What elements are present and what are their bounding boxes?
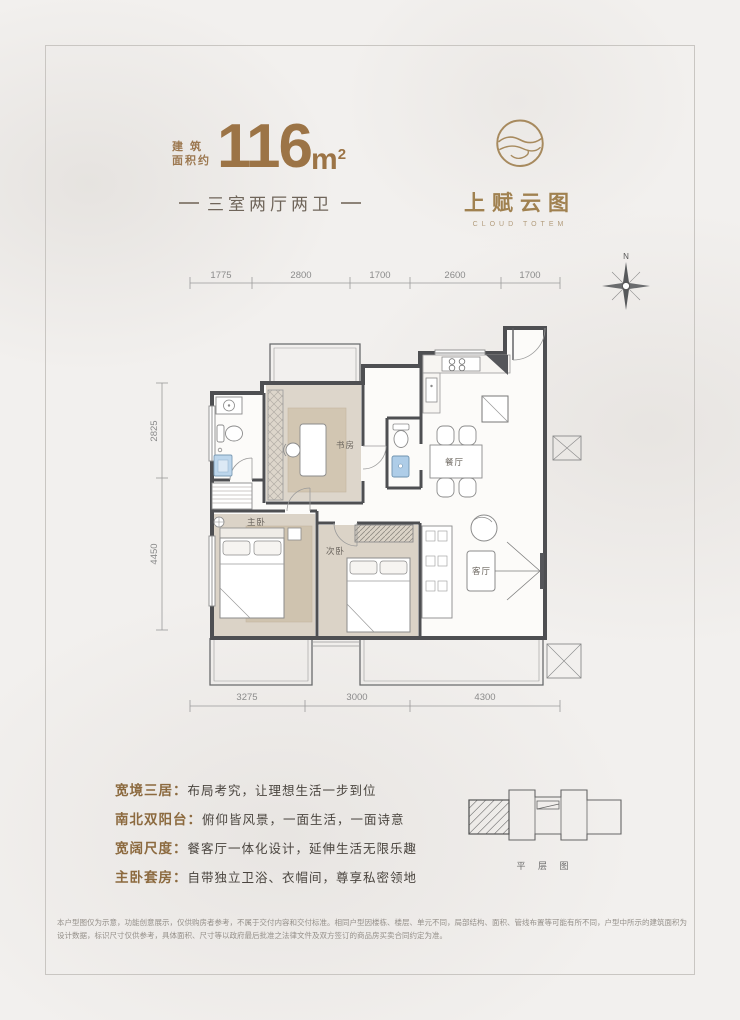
dim-top-3: 1700 bbox=[369, 270, 390, 281]
area-row: 建 筑 面积约 116 m 2 bbox=[172, 116, 372, 178]
room-label-living: 客厅 bbox=[472, 566, 491, 576]
dim-left-1: 2825 bbox=[150, 420, 160, 441]
building-key-plan: 平 层 图 bbox=[460, 778, 630, 872]
brand-name-cn: 上赋云图 bbox=[448, 187, 592, 217]
poster-page: 建 筑 面积约 116 m 2 三室两厅两卫 上赋云图 CLOUD TOTEM bbox=[0, 0, 740, 1020]
room-label-study: 书房 bbox=[336, 440, 355, 450]
dim-bottom-1: 3275 bbox=[236, 692, 257, 703]
brand-logo: 上赋云图 CLOUD TOTEM bbox=[448, 110, 592, 228]
room-label-master: 主卧 bbox=[247, 517, 266, 527]
feature-label: 宽阔尺度： bbox=[115, 837, 188, 857]
ac-platform-icon bbox=[547, 436, 581, 678]
dim-top-2: 2800 bbox=[290, 270, 311, 281]
key-plan-caption: 平 层 图 bbox=[460, 859, 630, 872]
feature-label: 主卧套房： bbox=[115, 866, 188, 886]
feature-desc: 餐客厅一体化设计，延伸生活无限乐趣 bbox=[188, 838, 418, 857]
feature-label: 南北双阳台： bbox=[115, 808, 202, 828]
feature-row-4: 主卧套房： 自带独立卫浴、衣帽间，尊享私密领地 bbox=[115, 866, 455, 886]
dim-left-2: 4450 bbox=[150, 543, 160, 564]
dim-top-4: 2600 bbox=[444, 270, 465, 281]
area-header: 建 筑 面积约 116 m 2 三室两厅两卫 bbox=[172, 116, 372, 215]
area-prefix-line1: 建 筑 bbox=[172, 140, 211, 154]
feature-desc: 布局考究，让理想生活一步到位 bbox=[188, 780, 377, 799]
feature-label: 宽境三居： bbox=[115, 779, 188, 799]
cloud-totem-emblem-icon bbox=[485, 110, 555, 180]
highlighted-unit bbox=[469, 800, 509, 834]
room-label-second: 次卧 bbox=[326, 546, 345, 556]
floor-plan: 1775 2800 1700 2600 1700 2825 4450 3275 … bbox=[150, 256, 670, 741]
dim-top-1: 1775 bbox=[210, 270, 231, 281]
subtitle-dash-left bbox=[179, 202, 199, 204]
area-exponent: 2 bbox=[338, 146, 346, 163]
dim-top-5: 1700 bbox=[519, 270, 540, 281]
area-unit: m bbox=[311, 143, 338, 177]
dim-bottom-3: 4300 bbox=[474, 692, 495, 703]
feature-list: 宽境三居： 布局考究，让理想生活一步到位 南北双阳台： 俯仰皆风景，一面生活，一… bbox=[115, 779, 455, 895]
layout-subtitle: 三室两厅两卫 bbox=[207, 190, 333, 215]
key-plan-diagram bbox=[465, 778, 625, 846]
area-prefix-line2: 面积约 bbox=[172, 154, 211, 168]
disclaimer-text: 本户型图仅为示意，功能创意展示，仅供购房者参考，不属于交付内容和交付标准。相同户… bbox=[57, 916, 687, 942]
feature-row-2: 南北双阳台： 俯仰皆风景，一面生活，一面诗意 bbox=[115, 808, 455, 828]
feature-row-1: 宽境三居： 布局考究，让理想生活一步到位 bbox=[115, 779, 455, 799]
feature-row-3: 宽阔尺度： 餐客厅一体化设计，延伸生活无限乐趣 bbox=[115, 837, 455, 857]
room-label-dining: 餐厅 bbox=[445, 457, 464, 467]
feature-desc: 自带独立卫浴、衣帽间，尊享私密领地 bbox=[188, 867, 418, 886]
storage-cabinet-icon bbox=[212, 483, 252, 509]
area-prefix: 建 筑 面积约 bbox=[172, 140, 211, 168]
subtitle-row: 三室两厅两卫 bbox=[172, 190, 368, 215]
area-value: 116 bbox=[217, 116, 311, 178]
subtitle-dash-right bbox=[341, 202, 361, 204]
second-bed-icon bbox=[347, 525, 413, 632]
brand-name-en: CLOUD TOTEM bbox=[448, 221, 592, 228]
feature-desc: 俯仰皆风景，一面生活，一面诗意 bbox=[202, 809, 405, 828]
dim-bottom-2: 3000 bbox=[346, 692, 367, 703]
